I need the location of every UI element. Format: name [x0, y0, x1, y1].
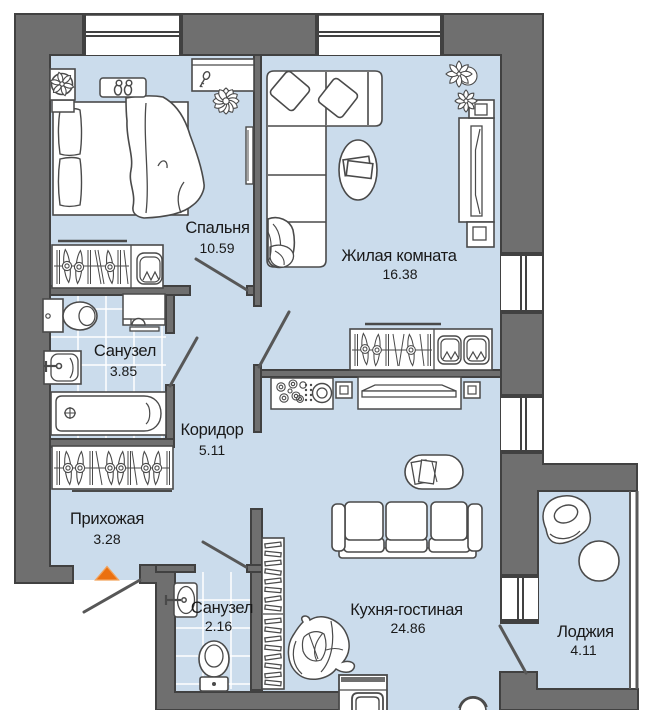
- svg-text:Лоджия: Лоджия: [557, 623, 614, 641]
- svg-text:Жилая комната: Жилая комната: [341, 247, 457, 265]
- svg-text:Спальня: Спальня: [185, 219, 249, 237]
- svg-text:10.59: 10.59: [199, 240, 234, 256]
- svg-text:3.85: 3.85: [110, 363, 137, 379]
- svg-text:24.86: 24.86: [390, 620, 425, 636]
- svg-text:Санузел: Санузел: [94, 342, 156, 360]
- svg-text:Коридор: Коридор: [180, 421, 243, 439]
- svg-text:5.11: 5.11: [199, 442, 225, 458]
- svg-text:2.16: 2.16: [205, 618, 232, 634]
- svg-text:4.11: 4.11: [570, 642, 596, 658]
- svg-text:Санузел: Санузел: [191, 599, 253, 617]
- svg-text:3.28: 3.28: [93, 531, 120, 547]
- svg-text:16.38: 16.38: [382, 266, 417, 282]
- svg-text:Кухня-гостиная: Кухня-гостиная: [350, 601, 463, 619]
- svg-text:Прихожая: Прихожая: [70, 510, 144, 528]
